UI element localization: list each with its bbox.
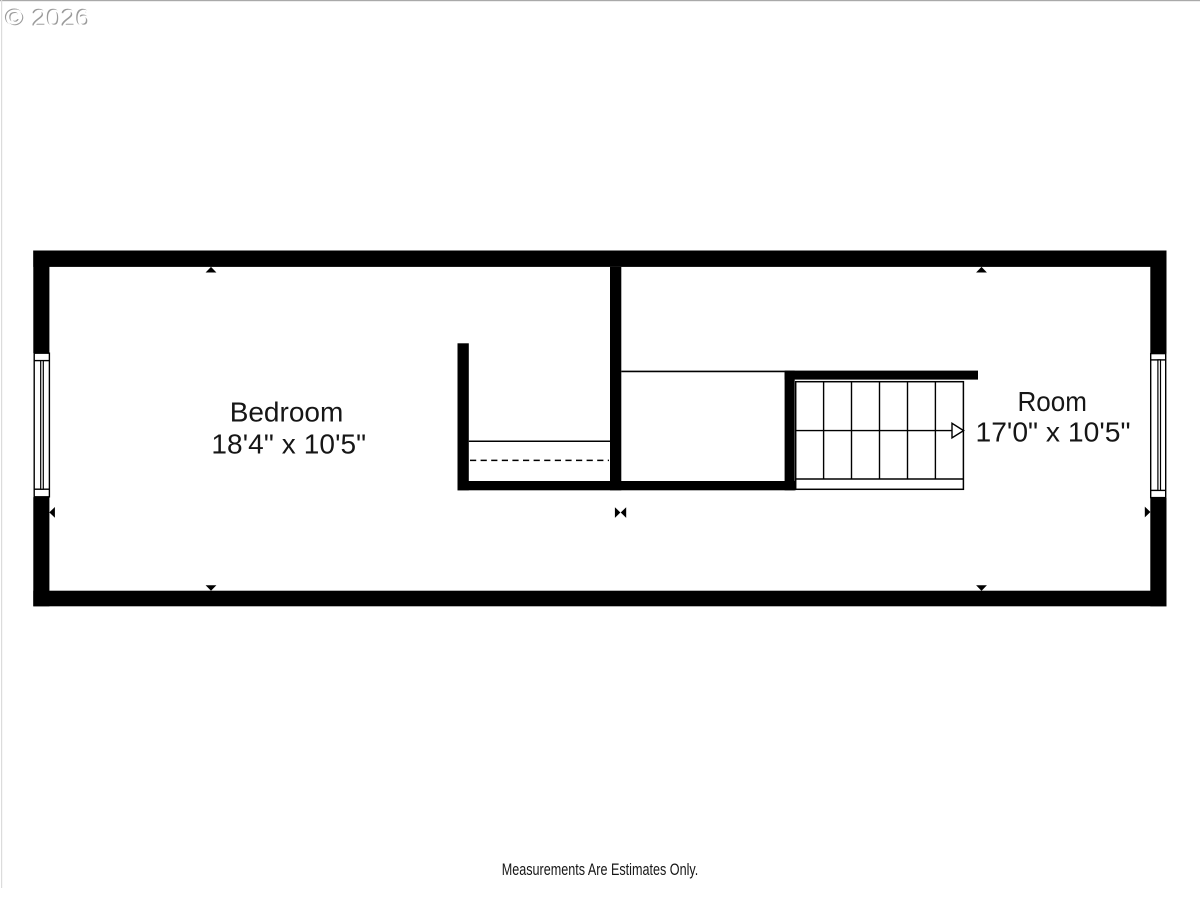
svg-text:18'4" x 10'5": 18'4" x 10'5" [211, 428, 366, 459]
svg-text:Bedroom: Bedroom [230, 397, 344, 428]
svg-text:© 2026: © 2026 [6, 6, 91, 33]
svg-text:Measurements Are Estimates Onl: Measurements Are Estimates Only. [502, 861, 699, 879]
svg-text:17'0" x 10'5": 17'0" x 10'5" [976, 417, 1131, 448]
svg-text:Room: Room [1017, 386, 1087, 417]
